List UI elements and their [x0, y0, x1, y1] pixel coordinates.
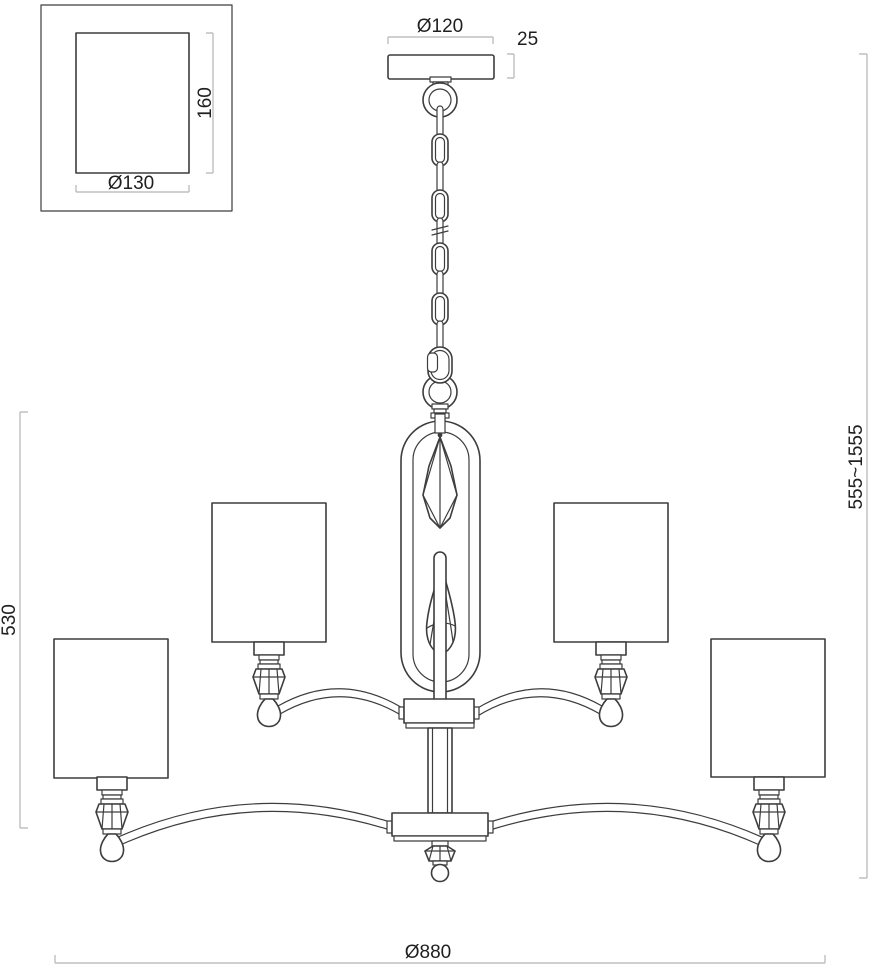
- shade-detail-inset: 160 Ø130: [41, 5, 232, 211]
- center-body: [401, 414, 480, 703]
- body-height-dimension-line: [20, 412, 28, 828]
- lower-hub-body: [392, 813, 488, 836]
- upper-hub-body: [404, 699, 474, 723]
- lower-hub-plate: [394, 836, 486, 841]
- center-column: [428, 728, 452, 813]
- overall-height-label: 555~1555: [846, 424, 867, 509]
- lower-right-shade: [711, 639, 825, 777]
- canopy-thickness-label: 25: [517, 29, 538, 50]
- canopy-body: [388, 55, 494, 79]
- finial-ball: [432, 865, 449, 882]
- lower-right-candle: [753, 777, 785, 862]
- upper-left-candle: [253, 642, 285, 727]
- lower-left-shade: [54, 639, 168, 778]
- inset-shade-outline: [76, 33, 189, 173]
- upper-right-arm: [476, 689, 602, 717]
- canopy-diameter-label: Ø120: [417, 16, 463, 37]
- body-stem: [435, 414, 445, 433]
- body-ring-inner: [429, 381, 451, 403]
- chain-link: [432, 293, 448, 325]
- upper-left-shade: [212, 503, 326, 642]
- canopy-nipple: [430, 77, 451, 82]
- upper-right-shade: [554, 503, 668, 642]
- suspension-chain: [432, 106, 448, 351]
- center-rod: [434, 552, 446, 703]
- inset-diameter-label: Ø130: [108, 173, 154, 194]
- chain-link: [432, 243, 448, 275]
- carabiner-gate: [428, 353, 438, 372]
- overall-diameter-label: Ø880: [405, 942, 451, 963]
- technical-drawing-page: 160 Ø130 Ø120 25: [0, 0, 875, 970]
- hanger-assembly: [423, 347, 457, 418]
- lower-left-arm: [116, 803, 390, 846]
- body-collar: [432, 404, 448, 409]
- canopy-diameter-dimension-line: [388, 37, 493, 44]
- lower-hub: [387, 813, 493, 882]
- column-body: [428, 728, 452, 813]
- upper-left-arm: [278, 689, 404, 717]
- chain-link: [432, 190, 448, 222]
- canopy-thickness-dimension-line: [507, 54, 514, 78]
- bottom-finial: [425, 841, 455, 882]
- lower-right-arm: [490, 803, 764, 846]
- upper-right-candle: [595, 642, 627, 727]
- body-height-label: 530: [0, 604, 20, 636]
- chandelier-drawing: 160 Ø130 Ø120 25: [0, 0, 875, 970]
- inset-height-label: 160: [195, 87, 216, 119]
- upper-hub: [399, 699, 479, 728]
- lower-left-candle: [96, 777, 128, 862]
- chain-link: [432, 134, 448, 166]
